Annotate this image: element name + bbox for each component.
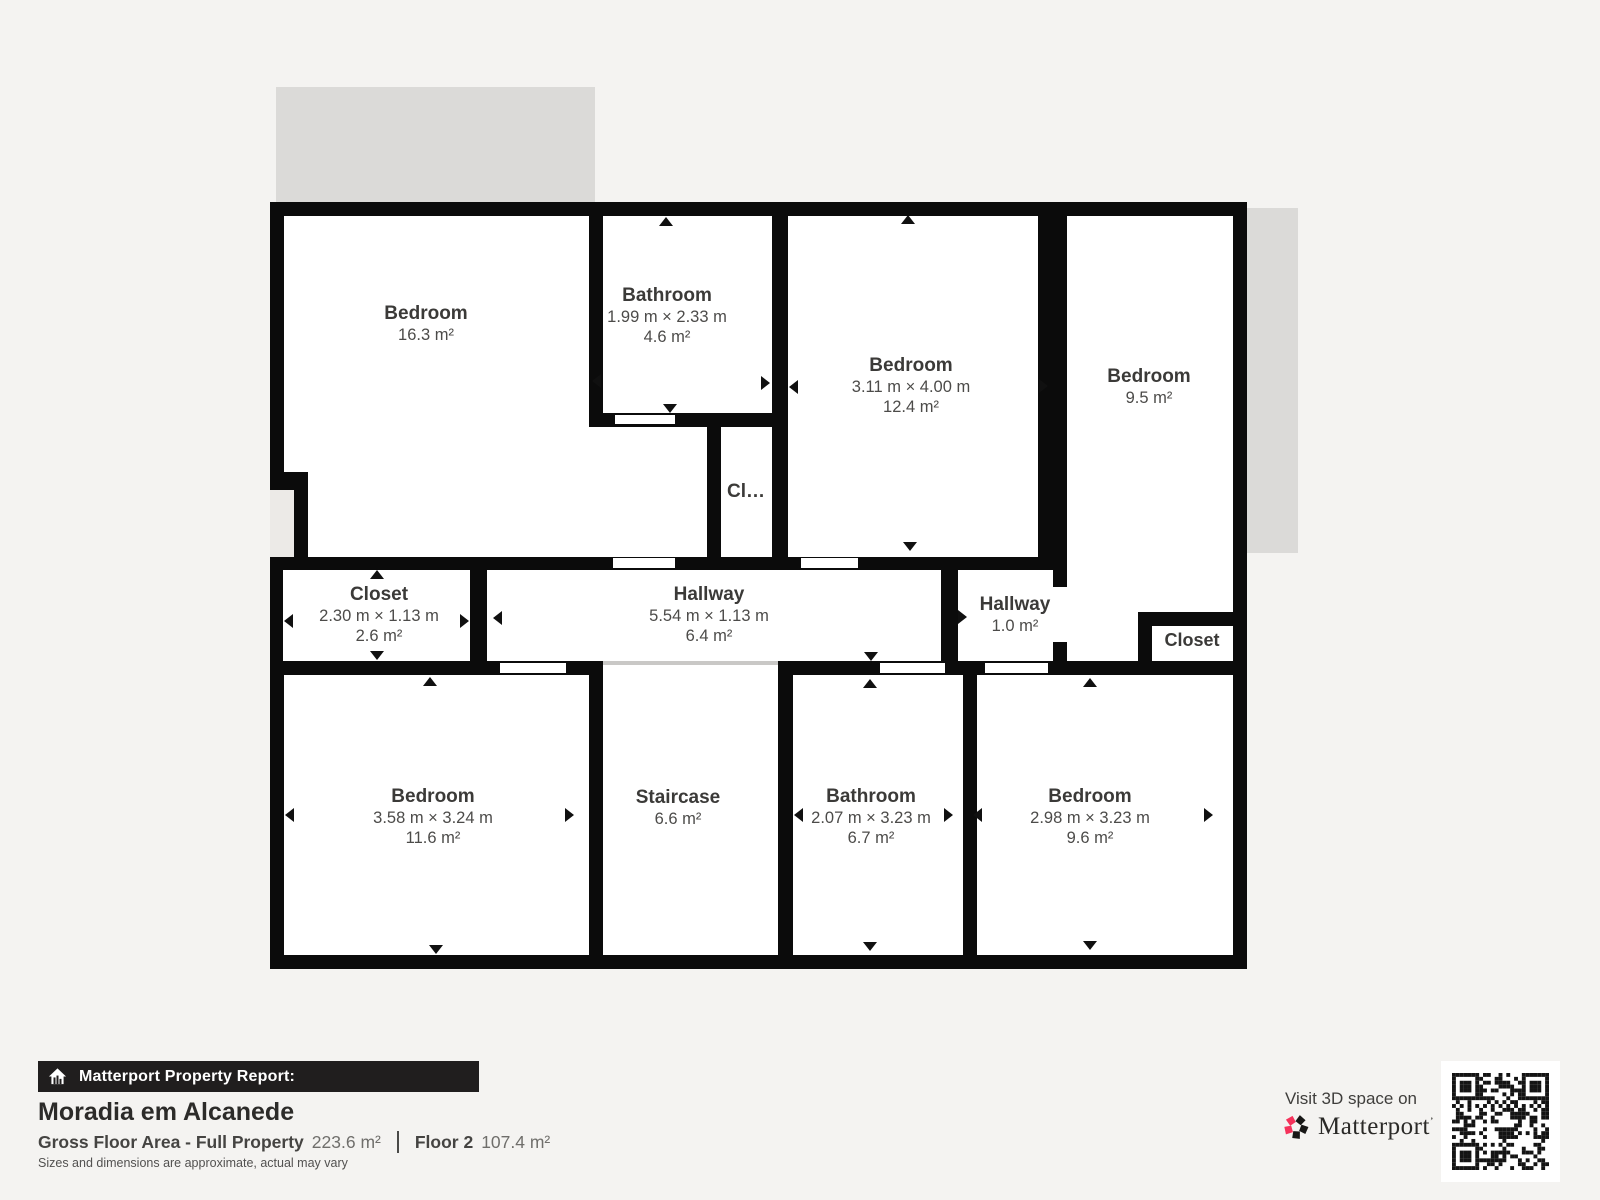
- room-area: 9.6 m²: [1030, 828, 1150, 848]
- door-marker-icon: [1039, 379, 1048, 393]
- wall-notch-pocket: [270, 490, 294, 557]
- qr-pattern: [1452, 1073, 1549, 1170]
- room-label-bedroom-96: Bedroom 2.98 m × 3.23 m 9.6 m²: [1030, 786, 1150, 848]
- room-name: Closet: [1164, 630, 1219, 651]
- room-dims: 2.30 m × 1.13 m: [319, 606, 439, 626]
- door-marker-icon: [423, 677, 437, 686]
- door-marker-icon: [1204, 808, 1213, 822]
- room-area: 6.4 m²: [649, 626, 769, 646]
- door-opening-bedroom16-hallway: [613, 558, 675, 568]
- door-opening-bedroom124-hallway: [801, 558, 858, 568]
- room-area: 9.5 m²: [1107, 388, 1190, 408]
- property-report-page: Bedroom 16.3 m² Bathroom 1.99 m × 2.33 m…: [0, 0, 1600, 1200]
- room-name: Bedroom: [852, 355, 970, 377]
- door-marker-icon: [663, 404, 677, 413]
- gross-area-value: 223.6 m²: [312, 1132, 381, 1153]
- matterport-logo-icon: [1282, 1113, 1310, 1141]
- property-title: Moradia em Alcanede: [38, 1098, 294, 1127]
- door-marker-icon: [944, 808, 953, 822]
- disclaimer-text: Sizes and dimensions are approximate, ac…: [38, 1156, 348, 1170]
- room-area: 16.3 m²: [384, 325, 467, 345]
- floor-label: Floor 2: [415, 1132, 473, 1153]
- door-marker-icon: [958, 610, 967, 624]
- room-label-closet-right: Closet: [1164, 630, 1219, 651]
- door-marker-icon: [863, 942, 877, 951]
- room-dims: 1.99 m × 2.33 m: [607, 307, 727, 327]
- gross-area-label: Gross Floor Area - Full Property: [38, 1132, 304, 1153]
- matterport-wordmark: Matterport’: [1318, 1113, 1434, 1141]
- visit-3d-text: Visit 3D space on: [1280, 1089, 1422, 1109]
- door-marker-icon: [1083, 678, 1097, 687]
- room-dims: 5.54 m × 1.13 m: [649, 606, 769, 626]
- door-marker-icon: [370, 651, 384, 660]
- room-label-bedroom-16: Bedroom 16.3 m²: [384, 303, 467, 345]
- door-marker-icon: [794, 808, 803, 822]
- room-name: Hallway: [649, 584, 769, 606]
- room-dims: 3.58 m × 3.24 m: [373, 808, 493, 828]
- room-label-hallway-10: Hallway 1.0 m²: [980, 594, 1051, 636]
- room-label-closet-26: Closet 2.30 m × 1.13 m 2.6 m²: [319, 584, 439, 646]
- door-marker-icon: [460, 614, 469, 628]
- room-area: 6.7 m²: [811, 828, 931, 848]
- matterport-brand: Matterport’: [1282, 1113, 1434, 1141]
- room-label-closet-cl: Cl…: [727, 481, 765, 503]
- qr-code: [1441, 1061, 1560, 1182]
- door-marker-icon: [493, 611, 502, 625]
- door-marker-icon: [565, 808, 574, 822]
- report-banner: Matterport Property Report:: [38, 1061, 479, 1092]
- room-name: Closet: [319, 584, 439, 606]
- door-marker-icon: [1083, 941, 1097, 950]
- room-label-bedroom-124: Bedroom 3.11 m × 4.00 m 12.4 m²: [852, 355, 970, 417]
- door-marker-icon: [903, 542, 917, 551]
- door-opening-bedroom116-hallway: [500, 663, 566, 673]
- door-marker-icon: [864, 652, 878, 661]
- door-marker-icon: [659, 217, 673, 226]
- room-area: 4.6 m²: [607, 327, 727, 347]
- house-icon: [48, 1067, 67, 1086]
- room-area: 2.6 m²: [319, 626, 439, 646]
- floorplan: Bedroom 16.3 m² Bathroom 1.99 m × 2.33 m…: [270, 202, 1247, 969]
- door-marker-icon: [592, 374, 601, 388]
- room-name: Staircase: [636, 787, 721, 809]
- floor-value: 107.4 m²: [481, 1132, 550, 1153]
- door-marker-icon: [973, 808, 982, 822]
- door-marker-icon: [761, 376, 770, 390]
- exterior-area-right: [1247, 208, 1298, 553]
- room-dims: 3.11 m × 4.00 m: [852, 377, 970, 397]
- room-area-bedroom-16-lower: [308, 427, 707, 557]
- door-opening-bathroom46: [615, 415, 675, 424]
- staircase-threshold-line: [603, 661, 778, 665]
- room-label-hallway-64: Hallway 5.54 m × 1.13 m 6.4 m²: [649, 584, 769, 646]
- room-name: Bedroom: [1030, 786, 1150, 808]
- room-dims: 2.07 m × 3.23 m: [811, 808, 931, 828]
- room-area: 6.6 m²: [636, 809, 721, 829]
- room-name: Bedroom: [373, 786, 493, 808]
- room-name: Bathroom: [811, 786, 931, 808]
- area-stats: Gross Floor Area - Full Property 223.6 m…: [38, 1131, 550, 1153]
- door-opening-bathroom67-hallway: [880, 663, 945, 673]
- brand-text: Matterport: [1318, 1113, 1430, 1140]
- report-banner-text: Matterport Property Report:: [79, 1068, 295, 1086]
- room-name: Cl…: [727, 481, 765, 503]
- room-dims: 2.98 m × 3.23 m: [1030, 808, 1150, 828]
- room-name: Hallway: [980, 594, 1051, 616]
- door-opening-hallway10-bedroom95: [1053, 587, 1067, 642]
- room-name: Bathroom: [607, 285, 727, 307]
- room-area: 11.6 m²: [373, 828, 493, 848]
- door-marker-icon: [285, 808, 294, 822]
- stats-divider: [397, 1131, 399, 1153]
- door-marker-icon: [789, 380, 798, 394]
- room-area-bedroom-95-leg: [1067, 216, 1138, 661]
- room-label-bathroom-46: Bathroom 1.99 m × 2.33 m 4.6 m²: [607, 285, 727, 347]
- door-marker-icon: [429, 945, 443, 954]
- door-marker-icon: [863, 679, 877, 688]
- room-label-staircase: Staircase 6.6 m²: [636, 787, 721, 829]
- door-opening-bedroom96-hallway10: [985, 663, 1048, 673]
- room-area: 1.0 m²: [980, 616, 1051, 636]
- door-marker-icon: [901, 215, 915, 224]
- door-marker-icon: [370, 570, 384, 579]
- room-name: Bedroom: [1107, 366, 1190, 388]
- room-label-bedroom-95: Bedroom 9.5 m²: [1107, 366, 1190, 408]
- room-area: 12.4 m²: [852, 397, 970, 417]
- room-name: Bedroom: [384, 303, 467, 325]
- door-marker-icon: [284, 614, 293, 628]
- room-label-bedroom-116: Bedroom 3.58 m × 3.24 m 11.6 m²: [373, 786, 493, 848]
- exterior-area-top: [276, 87, 595, 202]
- room-label-bathroom-67: Bathroom 2.07 m × 3.23 m 6.7 m²: [811, 786, 931, 848]
